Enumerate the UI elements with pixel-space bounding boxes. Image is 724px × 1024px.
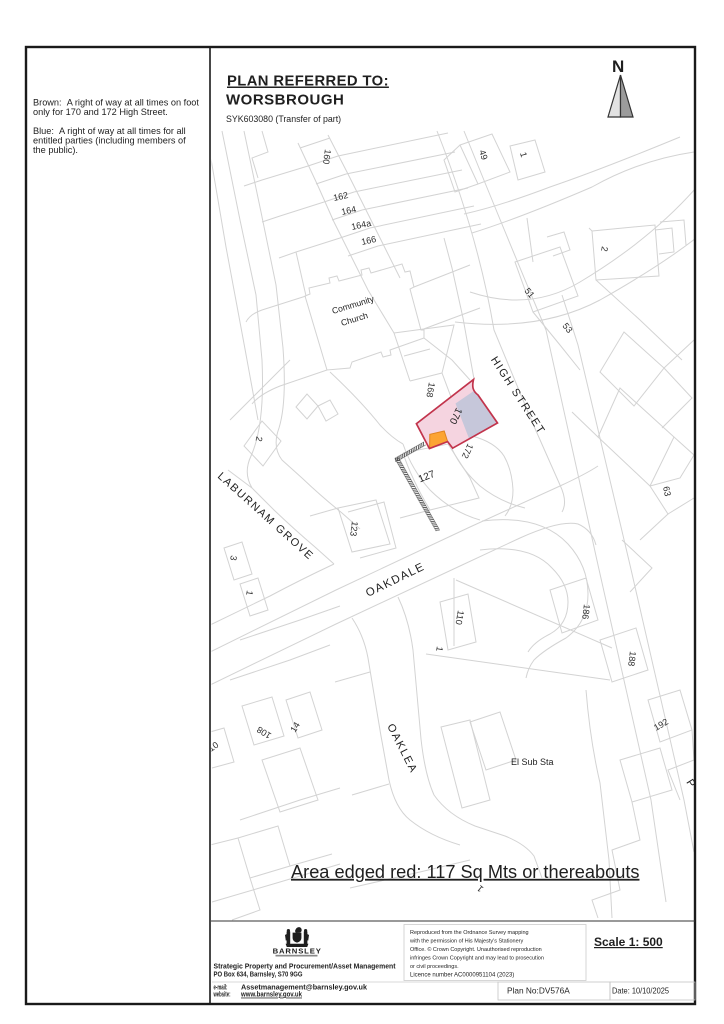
svg-text:WORSBROUGH: WORSBROUGH [226, 92, 344, 109]
svg-text:website:: website: [213, 990, 231, 999]
svg-text:PLAN REFERRED TO:: PLAN REFERRED TO: [227, 74, 389, 90]
svg-text:Scale 1: 500: Scale 1: 500 [594, 935, 663, 949]
svg-text:www.barnsley.gov.uk: www.barnsley.gov.uk [240, 990, 303, 999]
svg-text:N: N [612, 57, 624, 76]
svg-text:Area edged red: 117 Sq Mts or: Area edged red: 117 Sq Mts or thereabout… [291, 862, 639, 882]
svg-text:the public).: the public). [33, 145, 78, 155]
svg-text:Blue: A right of way at all t: Blue: A right of way at all times for al… [33, 126, 186, 136]
svg-text:Date: 10/10/2025: Date: 10/10/2025 [612, 986, 669, 996]
svg-text:or civil proceedings.: or civil proceedings. [410, 964, 459, 970]
svg-text:63: 63 [661, 485, 673, 497]
svg-text:only for 170 and 172 High Stre: only for 170 and 172 High Street. [33, 107, 168, 117]
svg-text:SYK603080 (Transfer of part): SYK603080 (Transfer of part) [226, 114, 341, 124]
svg-text:123: 123 [348, 521, 360, 537]
svg-text:Reproduced from the Ordnance S: Reproduced from the Ordnance Survey mapp… [410, 930, 529, 936]
svg-text:PO Box 634, Barnsley, S70 9GG: PO Box 634, Barnsley, S70 9GG [214, 969, 303, 978]
svg-text:entitled parties (including me: entitled parties (including members of [33, 136, 186, 146]
svg-text:with the permission of His Maj: with the permission of His Majesty's Sta… [409, 939, 523, 945]
svg-text:186: 186 [580, 604, 592, 620]
svg-text:Office. © Crown Copyright. Una: Office. © Crown Copyright. Unauthorised … [410, 946, 542, 953]
svg-text:El Sub Sta: El Sub Sta [511, 757, 554, 767]
svg-text:BARNSLEY: BARNSLEY [273, 947, 322, 956]
svg-text:160: 160 [321, 149, 333, 165]
svg-text:infringes Crown Copyright and: infringes Crown Copyright and may lead t… [410, 956, 544, 962]
svg-text:188: 188 [626, 651, 638, 667]
svg-text:Brown: A right of way at all: Brown: A right of way at all times on fo… [33, 98, 199, 108]
svg-text:Licence number AC0000951104 (2: Licence number AC0000951104 (2023) [410, 973, 514, 979]
svg-text:Plan No:DV576A: Plan No:DV576A [507, 986, 570, 996]
